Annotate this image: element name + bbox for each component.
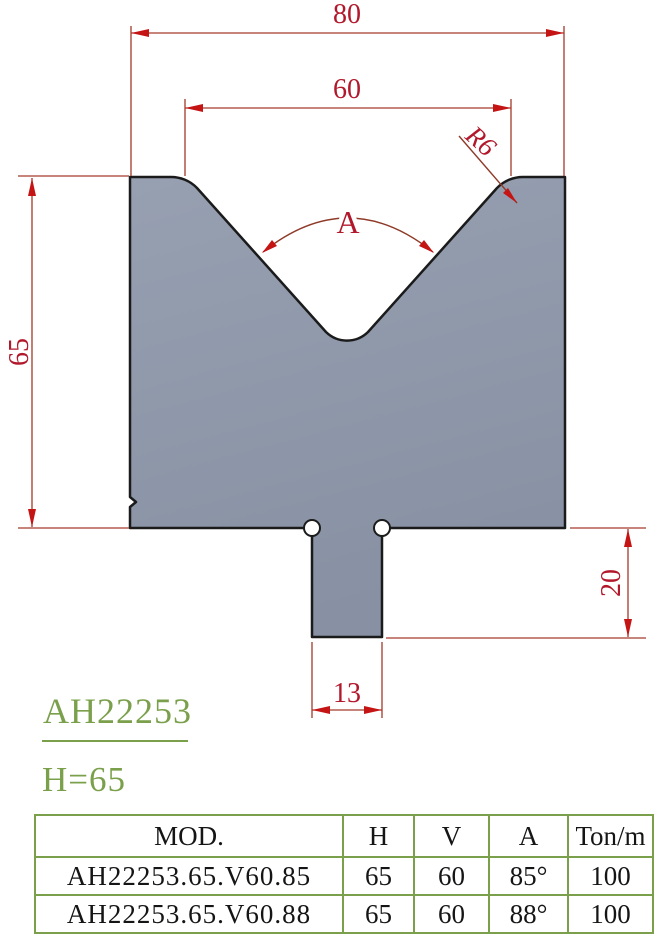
cell-h: 65 [343, 895, 414, 933]
dimension-v-opening-60: 60 [185, 74, 511, 176]
arrowhead-bottom [624, 619, 632, 637]
col-header-v: V [414, 815, 489, 857]
dimension-tang-width-13: 13 [312, 642, 382, 718]
dim-value-60: 60 [333, 74, 361, 105]
die-body [130, 177, 565, 637]
arc-arrowhead-right [419, 240, 434, 253]
die-outline [130, 177, 565, 637]
angle-annotation-A: A [262, 204, 434, 253]
spec-table-header-row: MOD. H V A Ton/m [35, 815, 653, 857]
cell-model: AH22253.65.V60.85 [35, 857, 343, 895]
arc-arrowhead-left [262, 240, 277, 253]
dimension-tang-height-20: 20 [386, 528, 646, 638]
technical-drawing-page: 80 60 65 20 13 A [0, 0, 654, 934]
cell-v: 60 [414, 857, 489, 895]
col-header-mod: MOD. [35, 815, 343, 857]
arrowhead-top [624, 529, 632, 547]
spec-table: MOD. H V A Ton/m AH22253.65.V60.85 65 60… [34, 814, 654, 934]
arrowhead-left [185, 104, 203, 112]
cell-model: AH22253.65.V60.88 [35, 895, 343, 933]
arrowhead-right [364, 706, 382, 714]
part-code: AH22253 [43, 693, 192, 729]
tang-relief-notch-left [304, 520, 320, 536]
arrowhead-left [312, 706, 330, 714]
part-code-underline [42, 740, 188, 742]
spec-table-row: AH22253.65.V60.88 65 60 88° 100 [35, 895, 653, 933]
cell-h: 65 [343, 857, 414, 895]
col-header-tonm: Ton/m [568, 815, 653, 857]
cell-v: 60 [414, 895, 489, 933]
die-drawing-canvas: 80 60 65 20 13 A [0, 0, 654, 780]
spec-table-row: AH22253.65.V60.85 65 60 85° 100 [35, 857, 653, 895]
col-header-h: H [343, 815, 414, 857]
dim-value-80: 80 [333, 0, 361, 30]
dim-value-65: 65 [4, 338, 35, 366]
cell-tonm: 100 [568, 857, 653, 895]
cell-tonm: 100 [568, 895, 653, 933]
extension-lines [185, 99, 511, 176]
angle-label: A [336, 204, 359, 240]
arrowhead-top [28, 178, 36, 196]
arrowhead-bottom [28, 509, 36, 527]
radius-callout-R6: R6 [459, 119, 517, 203]
dimension-height-65: 65 [4, 176, 129, 528]
dim-value-13: 13 [333, 678, 361, 709]
col-header-a: A [489, 815, 568, 857]
dim-value-20: 20 [596, 569, 627, 597]
arrowhead-right [546, 29, 564, 37]
arrowhead-left [131, 29, 149, 37]
cell-a: 85° [489, 857, 568, 895]
tang-relief-notch-right [374, 520, 390, 536]
radius-label: R6 [459, 119, 502, 162]
die-height-label: H=65 [42, 762, 126, 797]
cell-a: 88° [489, 895, 568, 933]
arrowhead-right [493, 104, 511, 112]
